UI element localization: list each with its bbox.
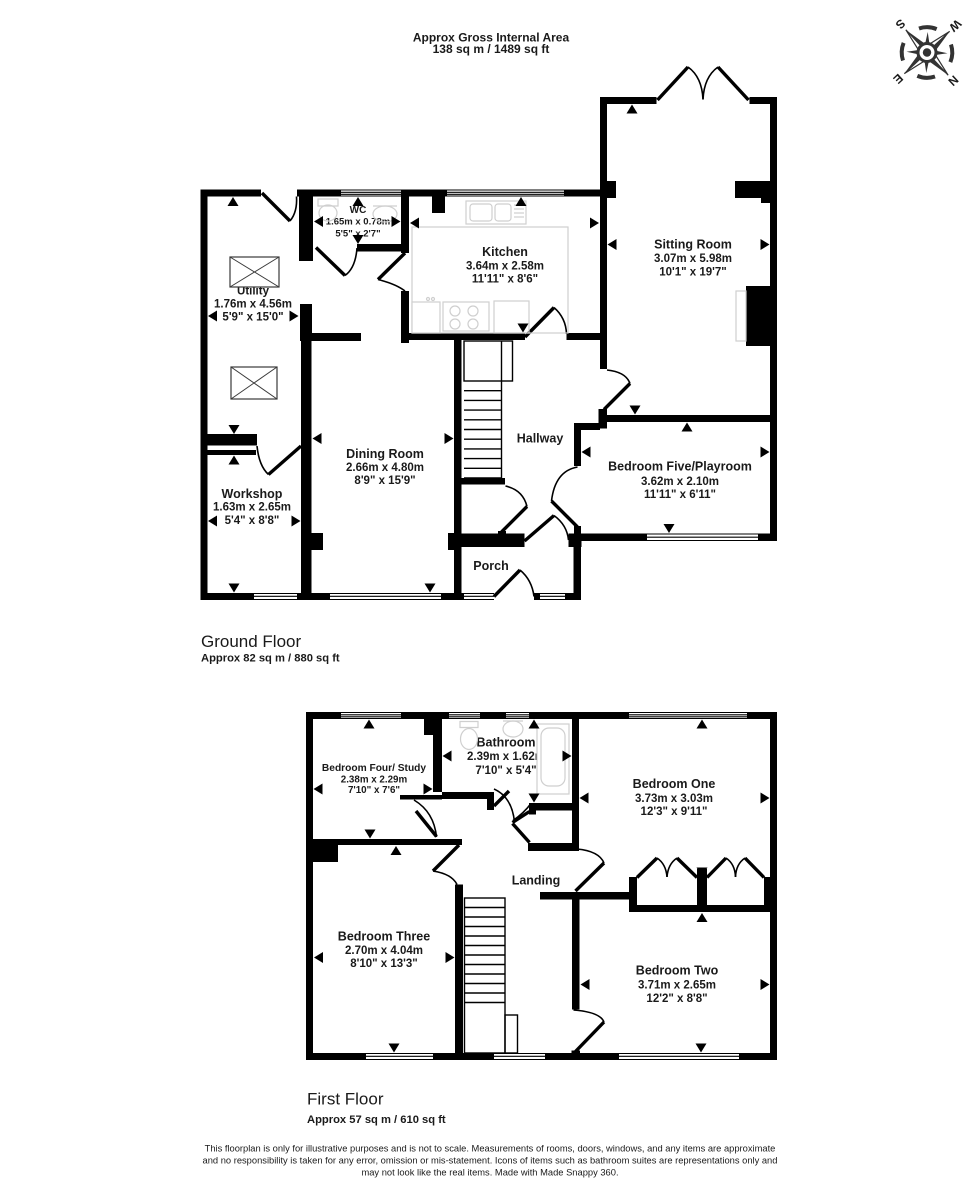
svg-text:2.39m x 1.62m: 2.39m x 1.62m xyxy=(467,751,545,763)
svg-text:WC: WC xyxy=(350,205,367,216)
svg-text:1.76m x 4.56m: 1.76m x 4.56m xyxy=(214,299,292,311)
svg-text:Hallway: Hallway xyxy=(517,431,564,445)
svg-text:Approx 82 sq m / 880 sq ft: Approx 82 sq m / 880 sq ft xyxy=(201,653,340,665)
svg-text:2.66m x 4.80m: 2.66m x 4.80m xyxy=(346,462,424,474)
svg-text:Bedroom Four/ Study: Bedroom Four/ Study xyxy=(322,763,426,774)
svg-text:2.70m x 4.04m: 2.70m x 4.04m xyxy=(345,945,423,957)
svg-text:Bathroom: Bathroom xyxy=(476,735,535,749)
svg-text:11'11" x 8'6": 11'11" x 8'6" xyxy=(472,274,538,286)
svg-text:3.73m x 3.03m: 3.73m x 3.03m xyxy=(635,793,713,805)
svg-text:10'1" x 19'7": 10'1" x 19'7" xyxy=(659,267,727,279)
svg-text:1.63m x 2.65m: 1.63m x 2.65m xyxy=(213,502,291,514)
svg-text:Porch: Porch xyxy=(473,559,508,573)
svg-text:Bedroom One: Bedroom One xyxy=(633,777,716,791)
svg-text:5'9" x 15'0": 5'9" x 15'0" xyxy=(222,312,283,324)
svg-text:Dining Room: Dining Room xyxy=(346,447,424,461)
svg-text:Bedroom Three: Bedroom Three xyxy=(338,929,430,943)
svg-text:3.64m x 2.58m: 3.64m x 2.58m xyxy=(466,261,544,273)
svg-text:7'10" x 5'4": 7'10" x 5'4" xyxy=(475,765,536,777)
svg-text:12'2" x 8'8": 12'2" x 8'8" xyxy=(646,993,707,1005)
svg-text:3.62m x 2.10m: 3.62m x 2.10m xyxy=(641,476,719,488)
svg-text:138 sq m / 1489 sq ft: 138 sq m / 1489 sq ft xyxy=(433,42,550,56)
svg-text:First Floor: First Floor xyxy=(307,1090,384,1109)
svg-text:8'10" x 13'3": 8'10" x 13'3" xyxy=(350,958,418,970)
svg-text:7'10" x 7'6": 7'10" x 7'6" xyxy=(348,785,400,796)
svg-text:Approx 57 sq m / 610 sq ft: Approx 57 sq m / 610 sq ft xyxy=(307,1114,446,1126)
svg-text:Bedroom Two: Bedroom Two xyxy=(636,963,719,977)
svg-text:Workshop: Workshop xyxy=(222,487,283,501)
svg-text:11'11" x 6'11": 11'11" x 6'11" xyxy=(644,489,716,501)
svg-text:2.38m x 2.29m: 2.38m x 2.29m xyxy=(341,775,408,786)
svg-text:Ground Floor: Ground Floor xyxy=(201,632,301,651)
svg-text:12'3" x 9'11": 12'3" x 9'11" xyxy=(641,806,708,818)
svg-text:5'4" x 8'8": 5'4" x 8'8" xyxy=(225,515,280,527)
svg-text:3.71m x 2.65m: 3.71m x 2.65m xyxy=(638,980,716,992)
svg-text:8'9" x 15'9": 8'9" x 15'9" xyxy=(354,475,415,487)
svg-text:Bedroom Five/Playroom: Bedroom Five/Playroom xyxy=(608,459,752,473)
svg-text:and no responsibility is taken: and no responsibility is taken for any e… xyxy=(203,1156,778,1166)
svg-text:Landing: Landing xyxy=(512,873,561,887)
svg-text:may not look like the real ite: may not look like the real items. Made w… xyxy=(361,1168,618,1178)
svg-text:Sitting Room: Sitting Room xyxy=(654,237,732,251)
svg-text:This floorplan is only for ill: This floorplan is only for illustrative … xyxy=(205,1144,776,1154)
svg-text:Kitchen: Kitchen xyxy=(482,245,528,259)
svg-text:3.07m x 5.98m: 3.07m x 5.98m xyxy=(654,253,732,265)
